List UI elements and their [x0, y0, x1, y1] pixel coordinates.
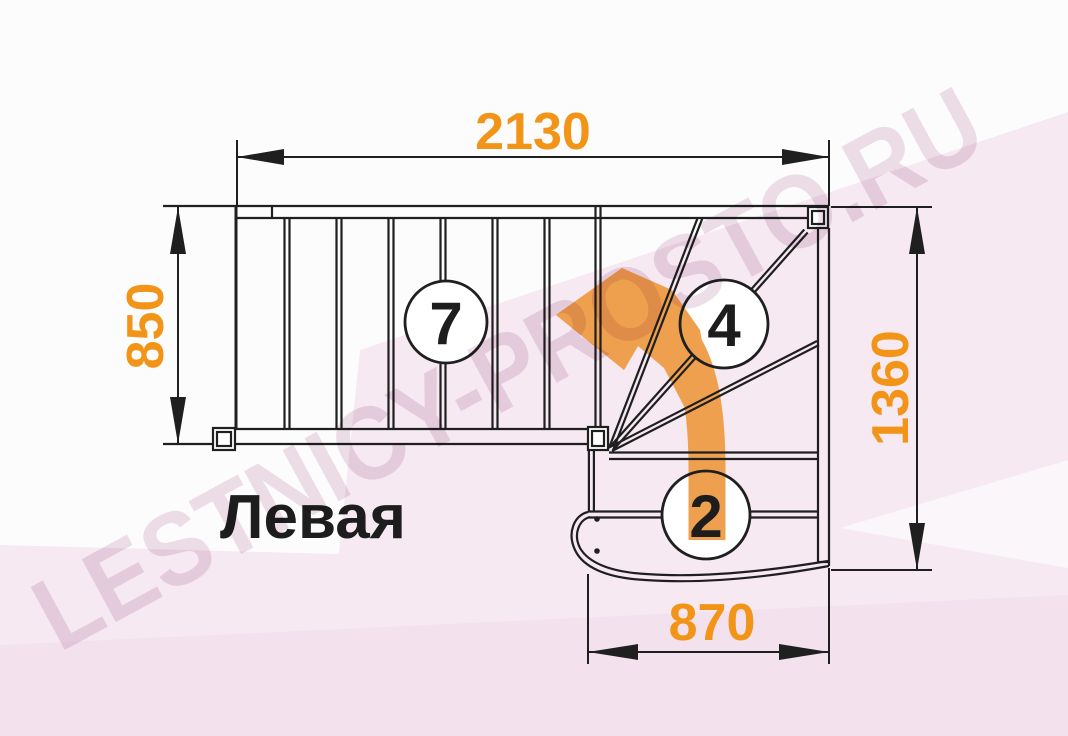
- stair-plan-canvas: 7 4 2 2130 850 1360 870 Левая LESTNICY-P…: [0, 0, 1068, 736]
- dim-bottom-value: 870: [669, 594, 756, 652]
- lower-flight-step-count: 2: [689, 483, 722, 550]
- dim-left-value: 850: [117, 283, 175, 370]
- stair-plan: 7 4 2 2130 850 1360 870 Левая LESTNICY-P…: [0, 0, 1068, 736]
- dim-right-value: 1360: [862, 330, 920, 446]
- dim-top-value: 2130: [475, 103, 591, 161]
